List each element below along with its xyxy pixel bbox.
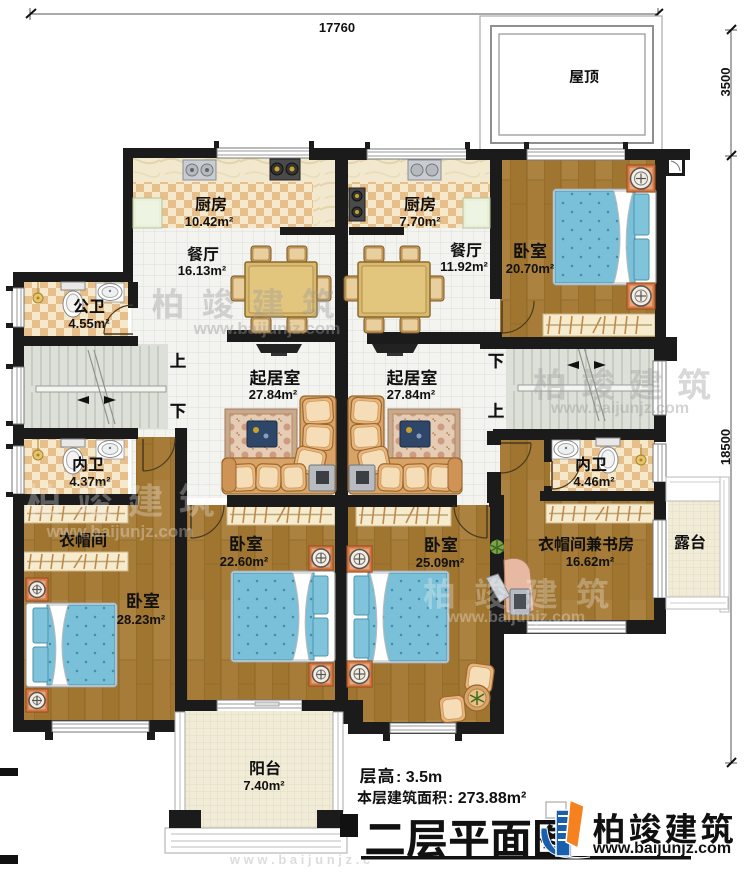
svg-text:4.55m²: 4.55m² (68, 316, 110, 331)
svg-text:www.baijunjz.com: www.baijunjz.com (446, 609, 585, 626)
svg-text:27.84m²: 27.84m² (387, 387, 436, 402)
svg-text:20.70m²: 20.70m² (506, 261, 555, 276)
svg-text:www.baijunjz.com: www.baijunjz.com (550, 400, 689, 417)
svg-text:3500: 3500 (718, 68, 733, 97)
svg-text:22.60m²: 22.60m² (220, 554, 269, 569)
svg-text:w w w . b a i j u n j z . c: w w w . b a i j u n j z . c (229, 852, 370, 867)
svg-text:: 3.5m: : 3.5m (396, 769, 442, 786)
svg-text:17760: 17760 (319, 20, 355, 35)
svg-text:www.baijunjz.com: www.baijunjz.com (193, 319, 341, 338)
svg-text:: 273.88m²: : 273.88m² (448, 790, 526, 807)
svg-text:27.84m²: 27.84m² (249, 387, 298, 402)
svg-text:4.46m²: 4.46m² (573, 474, 615, 489)
svg-text:28.23m²: 28.23m² (117, 612, 166, 627)
svg-text:16.62m²: 16.62m² (566, 554, 615, 569)
svg-text:16.13m²: 16.13m² (178, 263, 227, 278)
svg-text:18500: 18500 (718, 429, 733, 465)
svg-text:www.baijunjz.com: www.baijunjz.com (592, 840, 731, 857)
svg-text:11.92m²: 11.92m² (440, 259, 488, 274)
svg-text:www.baijunjz.com: www.baijunjz.com (46, 522, 194, 541)
svg-text:10.42m²: 10.42m² (185, 214, 234, 229)
svg-text:7.70m²: 7.70m² (399, 214, 441, 229)
svg-text:25.09m²: 25.09m² (416, 555, 465, 570)
svg-text:7.40m²: 7.40m² (243, 778, 285, 793)
